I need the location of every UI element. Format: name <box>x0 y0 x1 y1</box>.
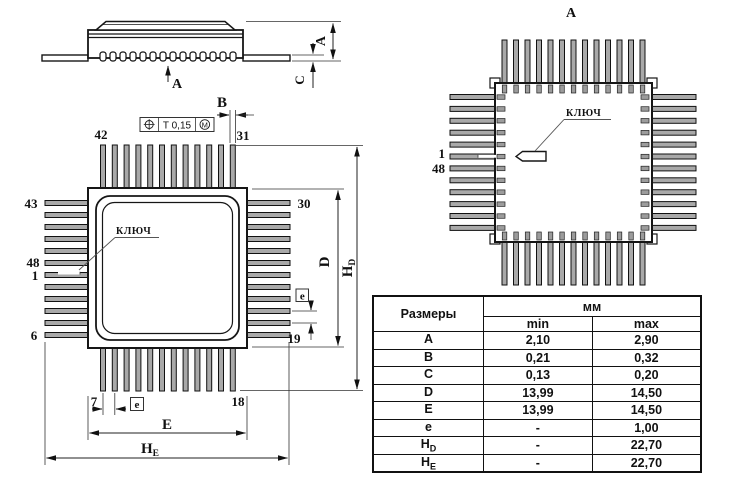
table-header-min: min <box>484 317 593 332</box>
bottom-view-pin-1-label: 1 <box>439 146 446 161</box>
dim-he-label: HE <box>141 441 159 459</box>
dim-name: e <box>373 419 484 437</box>
dim-max: 2,90 <box>592 332 701 350</box>
front-view-top-pins <box>101 145 236 189</box>
dim-name: E <box>373 402 484 420</box>
pitch-label-right: e <box>300 290 305 302</box>
package-drawing-sheet: A A C T 0,15 M КЛЮЧ <box>0 0 746 496</box>
view-arrow-label: A <box>172 77 183 92</box>
pin-1-label: 1 <box>32 268 39 283</box>
front-view-left-pins <box>45 201 89 338</box>
dim-e-label: E <box>162 417 172 433</box>
bottom-view-key-label: КЛЮЧ <box>566 108 601 119</box>
table-row: B0,210,32 <box>373 349 701 367</box>
table-row: D13,9914,50 <box>373 384 701 402</box>
pin1-notch <box>478 155 496 158</box>
bottom-view-bottom-pins <box>502 241 645 285</box>
dim-d-label: D <box>317 256 333 267</box>
dim-max: 14,50 <box>592 402 701 420</box>
bottom-view-right-pins <box>651 95 696 231</box>
pin-30-label: 30 <box>298 196 311 211</box>
mmc-modifier-letter: M <box>202 121 208 130</box>
pin-42-label: 42 <box>95 127 108 142</box>
front-view-body <box>88 188 247 348</box>
pin-19-label: 19 <box>288 331 302 346</box>
pin-18-label: 18 <box>232 394 246 409</box>
table-row: E13,9914,50 <box>373 402 701 420</box>
table-row: HD-22,70 <box>373 437 701 455</box>
tolerance-frame: T 0,15 M <box>140 118 214 132</box>
pin-43-label: 43 <box>25 196 39 211</box>
bottom-view-pin-48-label: 48 <box>432 161 446 176</box>
dim-max: 22,70 <box>592 454 701 472</box>
dim-max: 22,70 <box>592 437 701 455</box>
table-row: C0,130,20 <box>373 367 701 385</box>
dim-min: - <box>484 454 593 472</box>
dim-name: HE <box>373 454 484 472</box>
front-view-key-label: КЛЮЧ <box>116 226 151 237</box>
front-view-bottom-pins <box>101 347 236 391</box>
pin1-notch <box>58 272 80 275</box>
dim-name: C <box>373 367 484 385</box>
pitch-label-bottom: e <box>135 399 140 411</box>
dim-min: 13,99 <box>484 384 593 402</box>
front-view: КЛЮЧ 42 31 43 30 48 1 6 7 18 19 B D HD <box>25 95 364 465</box>
side-view-lid <box>96 22 235 31</box>
table-header-dims: Размеры <box>373 296 484 332</box>
table-row: e-1,00 <box>373 419 701 437</box>
side-view-left-lead <box>42 55 88 61</box>
dim-min: - <box>484 419 593 437</box>
dim-max: 0,32 <box>592 349 701 367</box>
dim-c-label: C <box>292 75 307 84</box>
table-row: HE-22,70 <box>373 454 701 472</box>
dim-max: 1,00 <box>592 419 701 437</box>
dim-name: B <box>373 349 484 367</box>
bottom-view-body <box>495 83 652 242</box>
front-view-right-pins <box>246 201 290 338</box>
bottom-view-top-pins <box>502 40 645 84</box>
bottom-view-left-pins <box>450 95 496 231</box>
side-view-right-lead <box>243 55 290 61</box>
dimensions-table: Размеры мм min max A2,102,90 B0,210,32 C… <box>372 295 702 473</box>
dim-max: 0,20 <box>592 367 701 385</box>
dim-name: D <box>373 384 484 402</box>
dim-name: HD <box>373 437 484 455</box>
dim-min: 0,13 <box>484 367 593 385</box>
dim-a-label: A <box>314 35 329 46</box>
bottom-view-label: A <box>566 6 577 21</box>
dim-b-label: B <box>217 95 227 111</box>
dim-max: 14,50 <box>592 384 701 402</box>
pin-6-label: 6 <box>31 328 38 343</box>
table-row: A2,102,90 <box>373 332 701 350</box>
bottom-view: A КЛЮЧ 1 48 <box>432 6 696 285</box>
pin-7-label: 7 <box>91 394 98 409</box>
key-marker <box>516 152 546 162</box>
dim-min: 2,10 <box>484 332 593 350</box>
dim-min: 13,99 <box>484 402 593 420</box>
side-view: A A C <box>42 22 341 93</box>
dim-name: A <box>373 332 484 350</box>
table-header-unit: мм <box>484 296 702 317</box>
dim-hd-label: HD <box>340 259 358 278</box>
pin-31-label: 31 <box>237 128 250 143</box>
dim-min: - <box>484 437 593 455</box>
table-header-max: max <box>592 317 701 332</box>
dim-min: 0,21 <box>484 349 593 367</box>
tolerance-value: T 0,15 <box>163 121 192 132</box>
